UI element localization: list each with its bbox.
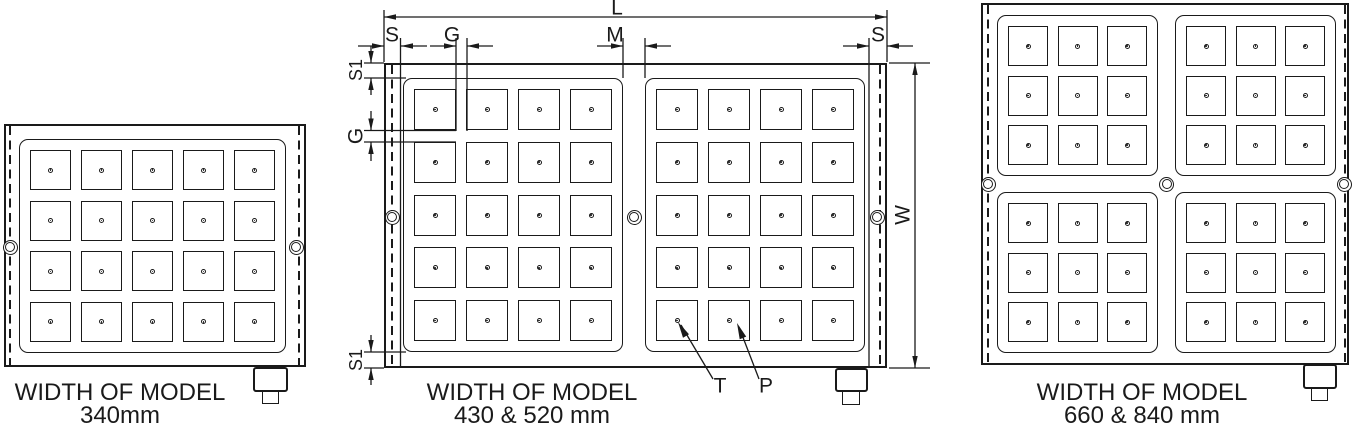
pole-square xyxy=(1285,203,1325,243)
pole-center-dot xyxy=(1204,44,1209,49)
pole-center-dot xyxy=(537,265,542,270)
terminal-box-small xyxy=(262,391,279,404)
pole-square xyxy=(1058,125,1098,165)
pole-square xyxy=(1186,76,1226,116)
pole-center-dot xyxy=(727,318,732,323)
pole-center-dot xyxy=(201,168,206,173)
pole-center-dot xyxy=(727,107,732,112)
pole-center-dot xyxy=(433,318,438,323)
pole-center-dot xyxy=(252,269,257,274)
pole-square xyxy=(1008,26,1048,66)
pole-center-dot xyxy=(1303,44,1308,49)
pole-center-dot xyxy=(485,318,490,323)
pole-square xyxy=(81,251,122,291)
pole-center-dot xyxy=(1253,221,1258,226)
pole-center-dot xyxy=(485,265,490,270)
pole-center-dot xyxy=(831,160,836,165)
pole-square xyxy=(812,247,854,288)
pole-center-dot xyxy=(589,318,594,323)
pole-center-dot xyxy=(48,319,53,324)
pole-square xyxy=(1236,125,1276,165)
pole-square xyxy=(132,302,173,342)
pole-center-dot xyxy=(150,319,155,324)
terminal-box xyxy=(835,368,868,392)
pole-center-dot xyxy=(252,218,257,223)
terminal-box-small xyxy=(842,391,860,405)
dim-label-gap-top: G xyxy=(444,25,460,46)
pole-square xyxy=(656,195,698,236)
pole-square xyxy=(570,195,612,236)
pole-center-dot xyxy=(675,265,680,270)
dim-label-s1-bottom: S1 xyxy=(347,349,365,371)
pole-center-dot xyxy=(589,265,594,270)
pole-center-dot xyxy=(485,160,490,165)
pole-square xyxy=(234,302,275,342)
pole-center-dot xyxy=(779,265,784,270)
pole-center-dot xyxy=(589,160,594,165)
pole-square xyxy=(30,150,71,190)
pole-square xyxy=(30,201,71,241)
pole-center-dot xyxy=(150,218,155,223)
dim-label-s1-top: S1 xyxy=(347,59,365,81)
pole-square xyxy=(1008,76,1048,116)
pole-square xyxy=(183,302,224,342)
pole-square xyxy=(1285,26,1325,66)
pole-square xyxy=(760,89,802,130)
pole-center-dot xyxy=(48,168,53,173)
pole-center-dot xyxy=(1253,143,1258,148)
caption-line: 430 & 520 mm xyxy=(412,405,652,425)
pole-square xyxy=(466,300,508,341)
pole-square xyxy=(812,300,854,341)
pole-square xyxy=(414,89,456,130)
pole-square xyxy=(1107,125,1147,165)
pole-square xyxy=(414,142,456,183)
pole-square xyxy=(1008,203,1048,243)
side-lug-icon xyxy=(981,177,996,192)
pole-square xyxy=(414,300,456,341)
pole-square xyxy=(708,300,750,341)
pole-center-dot xyxy=(1125,143,1130,148)
leader-label-p: P xyxy=(759,376,773,397)
pole-center-dot xyxy=(1125,93,1130,98)
pole-square xyxy=(1107,203,1147,243)
pole-square xyxy=(760,300,802,341)
pole-center-dot xyxy=(201,269,206,274)
pole-center-dot xyxy=(1303,221,1308,226)
dim-label-length: L xyxy=(611,0,623,19)
pole-square xyxy=(1107,26,1147,66)
pole-square xyxy=(812,195,854,236)
model-caption-340: WIDTH OF MODEL 340mm xyxy=(0,382,240,425)
pole-square xyxy=(1186,125,1226,165)
pole-center-dot xyxy=(252,168,257,173)
pole-center-dot xyxy=(831,213,836,218)
pole-square xyxy=(518,89,560,130)
dim-label-side-right: S xyxy=(871,25,885,46)
pole-square xyxy=(812,89,854,130)
pole-square xyxy=(1236,76,1276,116)
pole-center-dot xyxy=(99,218,104,223)
pole-center-dot xyxy=(727,160,732,165)
pole-square xyxy=(760,195,802,236)
pole-square xyxy=(183,251,224,291)
terminal-box-small xyxy=(1311,388,1328,401)
pole-square xyxy=(1107,253,1147,293)
pole-block xyxy=(403,78,623,352)
dim-label-side-left: S xyxy=(385,25,399,46)
pole-center-dot xyxy=(831,107,836,112)
pole-center-dot xyxy=(1125,221,1130,226)
pole-center-dot xyxy=(433,213,438,218)
pole-center-dot xyxy=(589,107,594,112)
pole-center-dot xyxy=(99,319,104,324)
pole-square xyxy=(1236,26,1276,66)
pole-square xyxy=(760,247,802,288)
pole-square xyxy=(234,251,275,291)
pole-square xyxy=(1285,125,1325,165)
pole-square xyxy=(30,302,71,342)
pole-center-dot xyxy=(1204,320,1209,325)
pole-square xyxy=(708,247,750,288)
pole-square xyxy=(1186,26,1226,66)
pole-center-dot xyxy=(1026,143,1031,148)
pole-square xyxy=(1285,76,1325,116)
pole-center-dot xyxy=(1075,93,1080,98)
model-caption-430-520: WIDTH OF MODEL 430 & 520 mm xyxy=(412,382,652,425)
pole-center-dot xyxy=(831,318,836,323)
pole-square xyxy=(656,142,698,183)
pole-center-dot xyxy=(201,319,206,324)
pole-center-dot xyxy=(99,269,104,274)
pole-center-dot xyxy=(1125,270,1130,275)
pole-square xyxy=(570,300,612,341)
pole-center-dot xyxy=(1204,221,1209,226)
pole-center-dot xyxy=(537,107,542,112)
caption-line: 340mm xyxy=(0,405,240,425)
pole-square xyxy=(812,142,854,183)
pole-square xyxy=(570,142,612,183)
pole-square xyxy=(234,150,275,190)
pole-square xyxy=(708,195,750,236)
side-lug-icon xyxy=(870,210,885,225)
pole-center-dot xyxy=(433,265,438,270)
pole-square xyxy=(518,142,560,183)
pole-center-dot xyxy=(831,265,836,270)
pole-square xyxy=(81,150,122,190)
pole-center-dot xyxy=(150,269,155,274)
pole-center-dot xyxy=(1253,270,1258,275)
pole-center-dot xyxy=(537,213,542,218)
pole-center-dot xyxy=(589,213,594,218)
pole-square xyxy=(1058,26,1098,66)
pole-center-dot xyxy=(433,107,438,112)
pole-center-dot xyxy=(779,107,784,112)
pole-square xyxy=(1186,253,1226,293)
pole-center-dot xyxy=(1026,44,1031,49)
pole-square xyxy=(132,150,173,190)
pole-square xyxy=(708,89,750,130)
pole-square xyxy=(1008,302,1048,342)
pole-square xyxy=(518,247,560,288)
pole-square xyxy=(183,150,224,190)
pole-square xyxy=(518,195,560,236)
pole-square xyxy=(1107,76,1147,116)
pole-center-dot xyxy=(1075,143,1080,148)
leader-label-t: T xyxy=(714,376,727,397)
pole-center-dot xyxy=(537,318,542,323)
pole-block xyxy=(997,15,1158,176)
pole-square xyxy=(708,142,750,183)
pole-center-dot xyxy=(1075,270,1080,275)
pole-center-dot xyxy=(1303,143,1308,148)
pole-center-dot xyxy=(727,265,732,270)
pole-square xyxy=(1186,302,1226,342)
pole-center-dot xyxy=(779,213,784,218)
side-lug-icon xyxy=(1337,177,1352,192)
center-lug-icon xyxy=(627,210,642,225)
pole-center-dot xyxy=(1026,270,1031,275)
pole-square xyxy=(81,302,122,342)
pole-center-dot xyxy=(675,107,680,112)
pole-square xyxy=(183,201,224,241)
pole-block xyxy=(645,78,865,352)
pole-block xyxy=(19,139,286,353)
pole-square xyxy=(1236,203,1276,243)
pole-center-dot xyxy=(1026,93,1031,98)
pole-square xyxy=(656,247,698,288)
pole-square xyxy=(1058,302,1098,342)
model-caption-660-840: WIDTH OF MODEL 660 & 840 mm xyxy=(1022,382,1262,425)
pole-center-dot xyxy=(727,213,732,218)
pole-square xyxy=(81,201,122,241)
terminal-box xyxy=(253,367,288,392)
side-lug-icon xyxy=(385,210,400,225)
pole-square xyxy=(1058,253,1098,293)
pole-center-dot xyxy=(1204,270,1209,275)
pole-center-dot xyxy=(1026,320,1031,325)
pole-square xyxy=(1008,125,1048,165)
pole-center-dot xyxy=(1204,143,1209,148)
pole-layout-diagram: WIDTH OF MODEL 340mm WIDTH OF MODEL 430 … xyxy=(0,0,1353,425)
pole-center-dot xyxy=(433,160,438,165)
pole-center-dot xyxy=(675,318,680,323)
pole-center-dot xyxy=(1303,320,1308,325)
dim-label-middle: M xyxy=(606,25,624,46)
pole-center-dot xyxy=(201,218,206,223)
pole-center-dot xyxy=(1253,44,1258,49)
side-lug-icon xyxy=(289,240,304,255)
terminal-box xyxy=(1303,364,1337,389)
pole-center-dot xyxy=(1075,320,1080,325)
pole-square xyxy=(1008,253,1048,293)
pole-square xyxy=(760,142,802,183)
pole-square xyxy=(1186,203,1226,243)
center-lug-icon xyxy=(1159,177,1174,192)
pole-center-dot xyxy=(1125,44,1130,49)
pole-square xyxy=(466,142,508,183)
pole-center-dot xyxy=(252,319,257,324)
pole-center-dot xyxy=(1026,221,1031,226)
pole-center-dot xyxy=(675,213,680,218)
pole-center-dot xyxy=(537,160,542,165)
pole-center-dot xyxy=(48,269,53,274)
pole-block xyxy=(1175,15,1336,176)
pole-square xyxy=(656,300,698,341)
pole-block xyxy=(1175,192,1336,353)
pole-center-dot xyxy=(150,168,155,173)
caption-line: 660 & 840 mm xyxy=(1022,405,1262,425)
pole-square xyxy=(30,251,71,291)
pole-square xyxy=(1285,253,1325,293)
pole-center-dot xyxy=(99,168,104,173)
pole-square xyxy=(1058,76,1098,116)
pole-square xyxy=(234,201,275,241)
pole-center-dot xyxy=(1075,221,1080,226)
pole-center-dot xyxy=(1075,44,1080,49)
pole-square xyxy=(518,300,560,341)
pole-center-dot xyxy=(48,218,53,223)
dim-label-gap-left: G xyxy=(346,128,367,144)
pole-block xyxy=(997,192,1158,353)
pole-center-dot xyxy=(1253,93,1258,98)
dim-label-width: W xyxy=(893,205,914,225)
pole-square xyxy=(1236,302,1276,342)
pole-square xyxy=(1058,203,1098,243)
pole-square xyxy=(1107,302,1147,342)
pole-center-dot xyxy=(1125,320,1130,325)
pole-square xyxy=(414,195,456,236)
pole-square xyxy=(1236,253,1276,293)
side-lug-icon xyxy=(3,240,18,255)
pole-square xyxy=(570,89,612,130)
pole-center-dot xyxy=(1253,320,1258,325)
pole-center-dot xyxy=(779,318,784,323)
pole-center-dot xyxy=(1303,93,1308,98)
pole-center-dot xyxy=(1303,270,1308,275)
pole-square xyxy=(132,251,173,291)
pole-square xyxy=(466,195,508,236)
pole-square xyxy=(570,247,612,288)
pole-square xyxy=(466,89,508,130)
pole-center-dot xyxy=(675,160,680,165)
pole-center-dot xyxy=(1204,93,1209,98)
pole-square xyxy=(1285,302,1325,342)
pole-square xyxy=(656,89,698,130)
pole-center-dot xyxy=(779,160,784,165)
pole-center-dot xyxy=(485,213,490,218)
pole-square xyxy=(466,247,508,288)
pole-square xyxy=(132,201,173,241)
pole-square xyxy=(414,247,456,288)
pole-center-dot xyxy=(485,107,490,112)
